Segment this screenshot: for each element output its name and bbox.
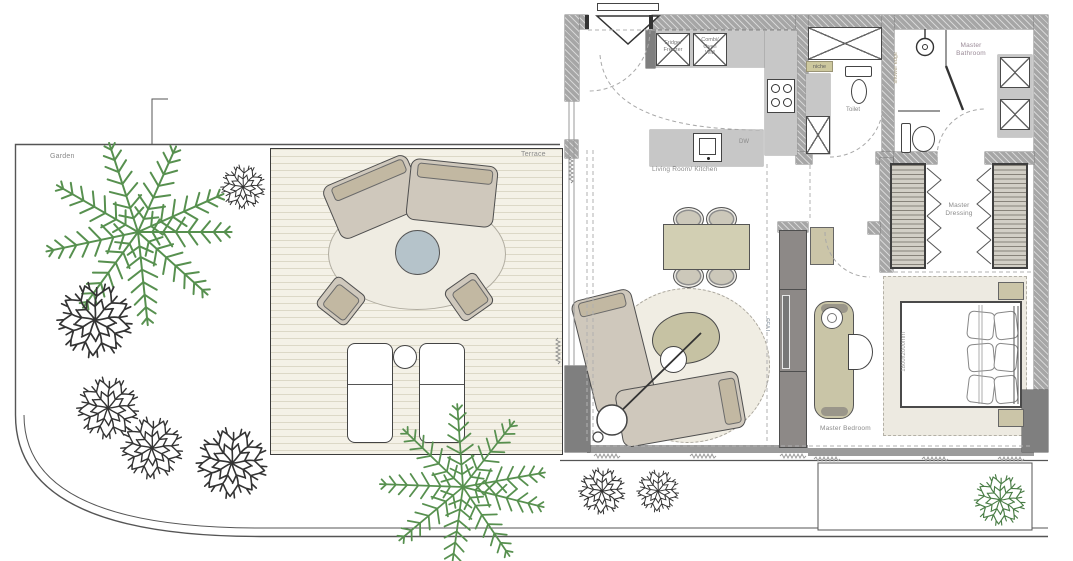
terrace-label: Terrace bbox=[521, 151, 546, 158]
hob bbox=[767, 79, 795, 113]
island-sink bbox=[693, 133, 722, 162]
bed bbox=[900, 301, 1022, 408]
pillar-right bbox=[1022, 390, 1048, 452]
wall-right bbox=[1034, 15, 1048, 405]
wall-left-upper bbox=[565, 15, 579, 101]
kitchen-counter-end bbox=[646, 30, 655, 68]
master-bathroom-label: MasterBathroom bbox=[940, 42, 1002, 58]
corridor-shelf bbox=[810, 227, 834, 265]
vanity-sink-top bbox=[1000, 57, 1030, 88]
vanity-sink-bottom bbox=[1000, 99, 1030, 130]
tv-screen bbox=[782, 295, 790, 369]
living-kitchen-label: Living Room/ Kitchen bbox=[652, 166, 717, 173]
sofa-cushion bbox=[416, 162, 493, 185]
fridge-freezer-label: Fridge/Freezer bbox=[656, 40, 690, 53]
bedside-bench-top bbox=[998, 282, 1024, 300]
terrace-sofa-right bbox=[405, 158, 499, 229]
master-dressing-label: MasterDressing bbox=[928, 202, 990, 218]
toilet-wc-tank bbox=[845, 66, 872, 77]
shrub-green bbox=[973, 475, 1026, 527]
dressing-wardrobe-left bbox=[890, 163, 926, 269]
bed-size-label: 1800x2000mm bbox=[901, 332, 907, 372]
lounger-side-table bbox=[393, 345, 417, 369]
toilet-label: Toilet bbox=[846, 107, 860, 113]
tv-label: TV55" bbox=[766, 316, 772, 332]
wall-bottom-living bbox=[587, 445, 808, 453]
master-bedroom-label: Master Bedroom bbox=[820, 425, 871, 432]
bathroom-wc-bowl bbox=[912, 126, 935, 152]
floor-plan: Fridge/Freezer Combi/OvenWM DW Living Ro… bbox=[0, 0, 1073, 561]
desk-decor bbox=[821, 307, 843, 329]
combi-oven-label: Combi/OvenWM bbox=[693, 37, 727, 57]
sun-lounger-right bbox=[419, 343, 465, 443]
bathroom-wc-tank bbox=[901, 123, 911, 153]
sun-lounger-left bbox=[347, 343, 393, 443]
dishwasher-label: DW bbox=[739, 139, 749, 145]
dining-table bbox=[663, 224, 750, 270]
garden-label: Garden bbox=[50, 153, 75, 160]
pillar-left bbox=[565, 366, 590, 452]
bedside-bench-bottom bbox=[998, 409, 1024, 427]
side-table bbox=[660, 346, 687, 373]
wall-bottom-bedroom bbox=[808, 448, 1034, 456]
tv-cabinet bbox=[779, 230, 807, 448]
wall-terrace-corner bbox=[565, 140, 578, 158]
dressing-wardrobe-right bbox=[992, 163, 1028, 269]
toilet-cabinet-sink bbox=[806, 116, 830, 154]
desk-chair bbox=[848, 334, 873, 370]
toilet-wc-bowl bbox=[851, 79, 867, 104]
toilet-storage bbox=[808, 27, 882, 60]
niche-label: niche bbox=[806, 61, 833, 72]
entry-arrow-bar bbox=[597, 3, 659, 11]
terrace-round-table bbox=[395, 230, 440, 275]
wall-bedroom-door-jamb bbox=[868, 222, 880, 234]
shower-edge-label: shower edge bbox=[893, 52, 899, 84]
wall-toilet-bathroom bbox=[882, 15, 894, 155]
